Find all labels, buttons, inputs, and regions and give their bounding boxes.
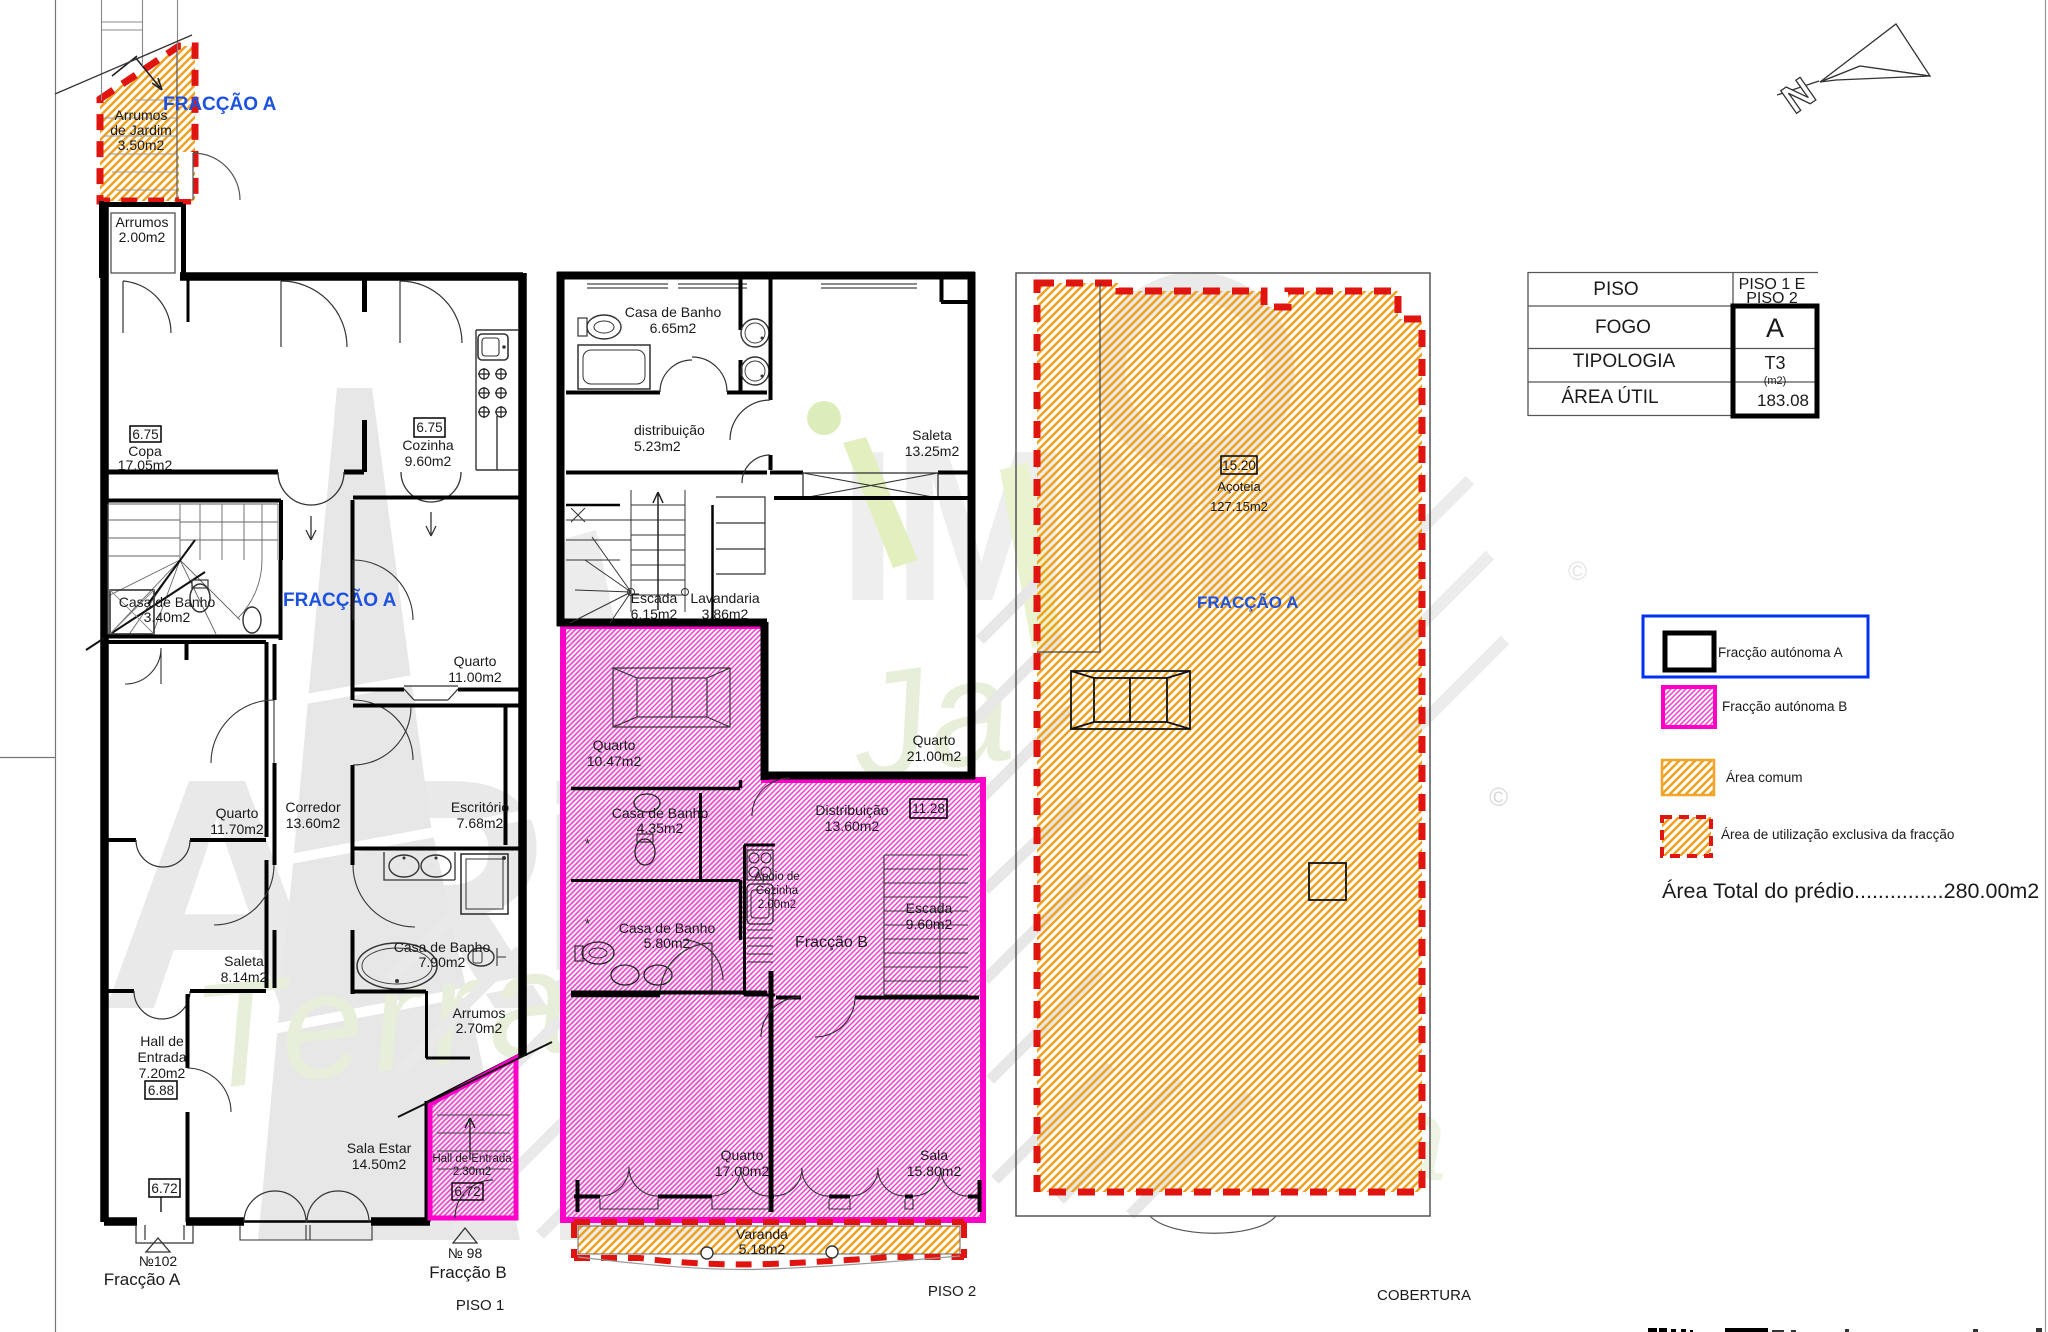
svg-text:FRACÇÃO A: FRACÇÃO A bbox=[163, 93, 277, 115]
svg-text:6.75: 6.75 bbox=[132, 427, 158, 442]
svg-text:Saleta13.25m2: Saleta13.25m2 bbox=[905, 427, 960, 459]
svg-text:Área de utilização exclusiva d: Área de utilização exclusiva da fracção bbox=[1721, 827, 1954, 842]
svg-text:Fracção A: Fracção A bbox=[104, 1270, 181, 1289]
svg-text:(m2): (m2) bbox=[1764, 375, 1787, 387]
svg-text:Quarto11.70m2: Quarto11.70m2 bbox=[210, 805, 264, 837]
svg-text:№ 98: № 98 bbox=[448, 1245, 483, 1261]
svg-text:A: A bbox=[1766, 313, 1784, 343]
svg-text:Distribuição13.60m2: Distribuição13.60m2 bbox=[815, 802, 888, 834]
svg-text:Escada9.60m2: Escada9.60m2 bbox=[906, 900, 953, 932]
svg-text:PISO 1: PISO 1 bbox=[456, 1297, 504, 1314]
svg-text:11.28: 11.28 bbox=[912, 801, 945, 816]
svg-text:T3: T3 bbox=[1764, 353, 1785, 373]
svg-text:*: * bbox=[585, 916, 590, 931]
svg-text:*: * bbox=[585, 836, 590, 851]
svg-text:©: © bbox=[1489, 782, 1508, 812]
svg-text:183.08: 183.08 bbox=[1757, 391, 1809, 410]
svg-text:Fracção B: Fracção B bbox=[429, 1263, 506, 1282]
svg-text:FRACÇÃO A: FRACÇÃO A bbox=[1197, 592, 1298, 612]
svg-text:Corredor13.60m2: Corredor13.60m2 bbox=[285, 799, 341, 831]
svg-text:PISO: PISO bbox=[1593, 279, 1638, 300]
svg-text:Fracção autónoma A: Fracção autónoma A bbox=[1718, 645, 1843, 660]
svg-text:©: © bbox=[1568, 556, 1587, 586]
svg-text:Escritório7.68m2: Escritório7.68m2 bbox=[451, 799, 510, 831]
svg-text:Área Total do prédio..........: Área Total do prédio...............280.0… bbox=[1662, 878, 2039, 903]
svg-text:6.88: 6.88 bbox=[148, 1083, 174, 1098]
svg-text:15.20: 15.20 bbox=[1222, 458, 1256, 473]
svg-text:FOGO: FOGO bbox=[1595, 317, 1651, 338]
svg-text:FRACÇÃO A: FRACÇÃO A bbox=[283, 589, 397, 611]
svg-text:Quarto10.47m2: Quarto10.47m2 bbox=[587, 737, 642, 769]
svg-text:№102: №102 bbox=[139, 1253, 178, 1269]
svg-text:Escada6.15m2: Escada6.15m2 bbox=[631, 590, 678, 622]
svg-text:Apoio deCozinha2.00m2: Apoio deCozinha2.00m2 bbox=[754, 871, 799, 911]
svg-text:COBERTURA: COBERTURA bbox=[1377, 1287, 1471, 1304]
svg-text:TIPOLOGIA: TIPOLOGIA bbox=[1573, 351, 1676, 372]
svg-text:6.72: 6.72 bbox=[151, 1181, 177, 1196]
svg-text:Arrumos2.70m2: Arrumos2.70m2 bbox=[453, 1005, 506, 1036]
svg-text:6.72: 6.72 bbox=[454, 1184, 480, 1199]
svg-text:Área comum: Área comum bbox=[1726, 770, 1803, 785]
svg-text:Quarto21.00m2: Quarto21.00m2 bbox=[907, 732, 962, 764]
svg-text:Fracção B: Fracção B bbox=[795, 934, 868, 951]
svg-text:ÁREA ÚTIL: ÁREA ÚTIL bbox=[1561, 386, 1658, 408]
svg-text:6.75: 6.75 bbox=[416, 420, 442, 435]
svg-text:Varanda5.18m2: Varanda5.18m2 bbox=[736, 1226, 788, 1257]
svg-text:Sala Estar14.50m2: Sala Estar14.50m2 bbox=[347, 1140, 412, 1172]
svg-text:PISO 1 EPISO 2: PISO 1 EPISO 2 bbox=[1739, 276, 1806, 307]
svg-text:Cozinha9.60m2: Cozinha9.60m2 bbox=[402, 437, 454, 469]
svg-text:Fracção autónoma B: Fracção autónoma B bbox=[1722, 699, 1847, 714]
svg-text:Quarto11.00m2: Quarto11.00m2 bbox=[448, 653, 502, 685]
svg-text:Hall deEntrada7.20m2: Hall deEntrada7.20m2 bbox=[137, 1033, 186, 1081]
svg-text:Saleta8.14m2: Saleta8.14m2 bbox=[221, 953, 268, 985]
svg-text:PISO 2: PISO 2 bbox=[928, 1283, 976, 1300]
svg-text:Arrumos2.00m2: Arrumos2.00m2 bbox=[116, 214, 169, 245]
